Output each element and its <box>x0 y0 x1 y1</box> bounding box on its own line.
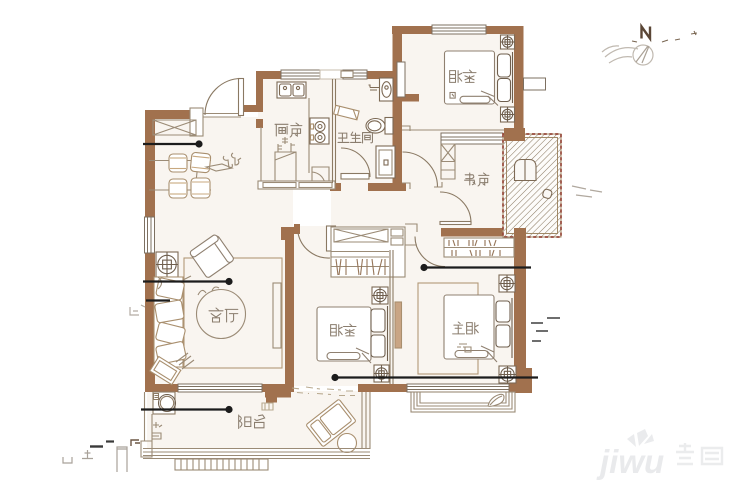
svg-text:jiwu: jiwu <box>596 443 664 480</box>
